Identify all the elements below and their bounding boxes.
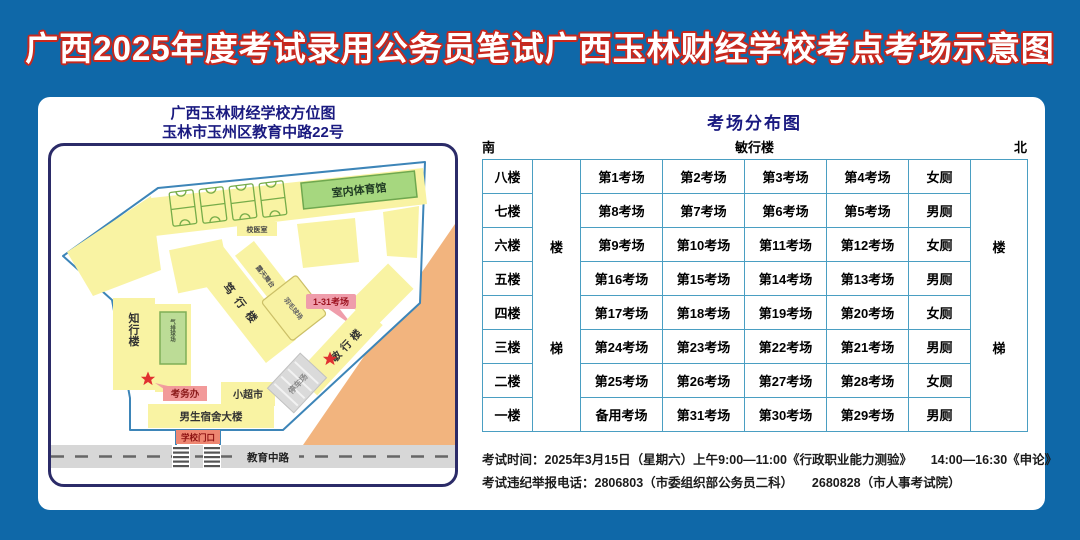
crosswalk-icon bbox=[172, 445, 190, 468]
exam-time-line: 考试时间：2025年3月15日（星期六）上午9:00—11:00《行政职业能力测… bbox=[482, 449, 1042, 472]
north-label: 北 bbox=[1014, 137, 1027, 156]
school-gate: 学校门口 bbox=[176, 430, 220, 445]
crosswalk-icon bbox=[203, 445, 221, 468]
campus-map-svg: 室内体育馆 校医室 笃行楼 bbox=[51, 146, 455, 484]
supermarket-label: 小超市 bbox=[232, 388, 263, 401]
room-cell: 第4考场 bbox=[827, 160, 909, 194]
exam-rooms-callout-label: 1-31考场 bbox=[313, 296, 349, 307]
room-cell: 第11考场 bbox=[745, 228, 827, 262]
room-cell: 第12考场 bbox=[827, 228, 909, 262]
room-cell: 第7考场 bbox=[663, 194, 745, 228]
clinic-building: 校医室 bbox=[237, 222, 277, 236]
floor-cell: 八楼 bbox=[483, 160, 533, 194]
stair-label: 梯 bbox=[533, 338, 580, 357]
room-cell: 第18考场 bbox=[663, 296, 745, 330]
building-label: 敏行楼 bbox=[735, 137, 774, 156]
floor-cell: 一楼 bbox=[483, 398, 533, 432]
floor-cell: 三楼 bbox=[483, 330, 533, 364]
distribution-table: 八楼 楼 梯 第1考场 第2考场 第3考场 第4考场 女厕 楼 梯 bbox=[482, 159, 1028, 432]
stair-label: 梯 bbox=[971, 338, 1027, 357]
room-cell: 第30考场 bbox=[745, 398, 827, 432]
stair-label: 楼 bbox=[971, 237, 1027, 256]
stair-label: 楼 bbox=[533, 237, 580, 256]
room-cell: 第2考场 bbox=[663, 160, 745, 194]
room-cell: 第6考场 bbox=[745, 194, 827, 228]
toilet-cell: 男厕 bbox=[909, 262, 971, 296]
room-cell: 第3考场 bbox=[745, 160, 827, 194]
room-cell: 第26考场 bbox=[663, 364, 745, 398]
toilet-cell: 女厕 bbox=[909, 364, 971, 398]
toilet-cell: 女厕 bbox=[909, 160, 971, 194]
room-cell: 第17考场 bbox=[581, 296, 663, 330]
floor-cell: 四楼 bbox=[483, 296, 533, 330]
room-cell: 第15考场 bbox=[663, 262, 745, 296]
stairwell-right-cell: 楼 梯 bbox=[971, 160, 1028, 432]
exam-office-label: 考务办 bbox=[171, 388, 200, 400]
room-cell: 第16考场 bbox=[581, 262, 663, 296]
volleyball-court: 气排球场 bbox=[155, 304, 191, 392]
room-cell: 第24考场 bbox=[581, 330, 663, 364]
exam-info: 考试时间：2025年3月15日（星期六）上午9:00—11:00《行政职业能力测… bbox=[482, 449, 1042, 495]
south-label: 南 bbox=[482, 137, 495, 156]
table-row: 八楼 楼 梯 第1考场 第2考场 第3考场 第4考场 女厕 楼 梯 bbox=[483, 160, 1028, 194]
floor-cell: 六楼 bbox=[483, 228, 533, 262]
room-cell: 第23考场 bbox=[663, 330, 745, 364]
content-panel: 广西玉林财经学校方位图 玉林市玉州区教育中路22号 室内体育馆 bbox=[38, 97, 1045, 510]
room-cell: 第10考场 bbox=[663, 228, 745, 262]
campus-map: 室内体育馆 校医室 笃行楼 bbox=[48, 143, 458, 487]
toilet-cell: 男厕 bbox=[909, 194, 971, 228]
map-title: 广西玉林财经学校方位图 玉林市玉州区教育中路22号 bbox=[48, 104, 458, 142]
dorm-building: 男生宿舍大楼 bbox=[148, 404, 274, 428]
clinic-label: 校医室 bbox=[247, 225, 268, 234]
road-label: 教育中路 bbox=[246, 451, 289, 464]
map-title-line1: 广西玉林财经学校方位图 bbox=[48, 104, 458, 123]
room-cell: 第9考场 bbox=[581, 228, 663, 262]
volleyball-label: 气排球场 bbox=[169, 318, 176, 343]
room-cell: 第29考场 bbox=[827, 398, 909, 432]
floor-cell: 二楼 bbox=[483, 364, 533, 398]
room-cell: 第22考场 bbox=[745, 330, 827, 364]
report-phone-line: 考试违纪举报电话：2806803（市委组织部公务员二科） 2680828（市人事… bbox=[482, 472, 1042, 495]
room-cell: 第20考场 bbox=[827, 296, 909, 330]
road: 教育中路 bbox=[51, 445, 455, 468]
direction-row: 南 敏行楼 北 bbox=[482, 137, 1027, 156]
room-cell: 第28考场 bbox=[827, 364, 909, 398]
zhixing-label: 知行楼 bbox=[128, 311, 140, 348]
room-cell: 第27考场 bbox=[745, 364, 827, 398]
room-cell: 第8考场 bbox=[581, 194, 663, 228]
map-title-line2: 玉林市玉州区教育中路22号 bbox=[48, 123, 458, 142]
room-cell: 第21考场 bbox=[827, 330, 909, 364]
distribution-title: 考场分布图 bbox=[482, 109, 1027, 134]
toilet-cell: 女厕 bbox=[909, 296, 971, 330]
floor-cell: 五楼 bbox=[483, 262, 533, 296]
toilet-cell: 男厕 bbox=[909, 398, 971, 432]
room-cell: 第19考场 bbox=[745, 296, 827, 330]
supermarket-building: 小超市 bbox=[221, 382, 275, 406]
room-cell: 第13考场 bbox=[827, 262, 909, 296]
building-block bbox=[383, 206, 419, 258]
room-cell: 第5考场 bbox=[827, 194, 909, 228]
toilet-cell: 女厕 bbox=[909, 228, 971, 262]
page-title: 广西2025年度考试录用公务员笔试广西玉林财经学校考点考场示意图 bbox=[0, 22, 1080, 70]
room-cell: 第25考场 bbox=[581, 364, 663, 398]
gate-label: 学校门口 bbox=[181, 433, 215, 443]
building-block bbox=[297, 218, 359, 268]
toilet-cell: 男厕 bbox=[909, 330, 971, 364]
room-cell: 第1考场 bbox=[581, 160, 663, 194]
room-cell: 第14考场 bbox=[745, 262, 827, 296]
dorm-label: 男生宿舍大楼 bbox=[180, 410, 243, 423]
stairwell-left-cell: 楼 梯 bbox=[533, 160, 581, 432]
room-cell: 第31考场 bbox=[663, 398, 745, 432]
floor-cell: 七楼 bbox=[483, 194, 533, 228]
room-cell: 备用考场 bbox=[581, 398, 663, 432]
